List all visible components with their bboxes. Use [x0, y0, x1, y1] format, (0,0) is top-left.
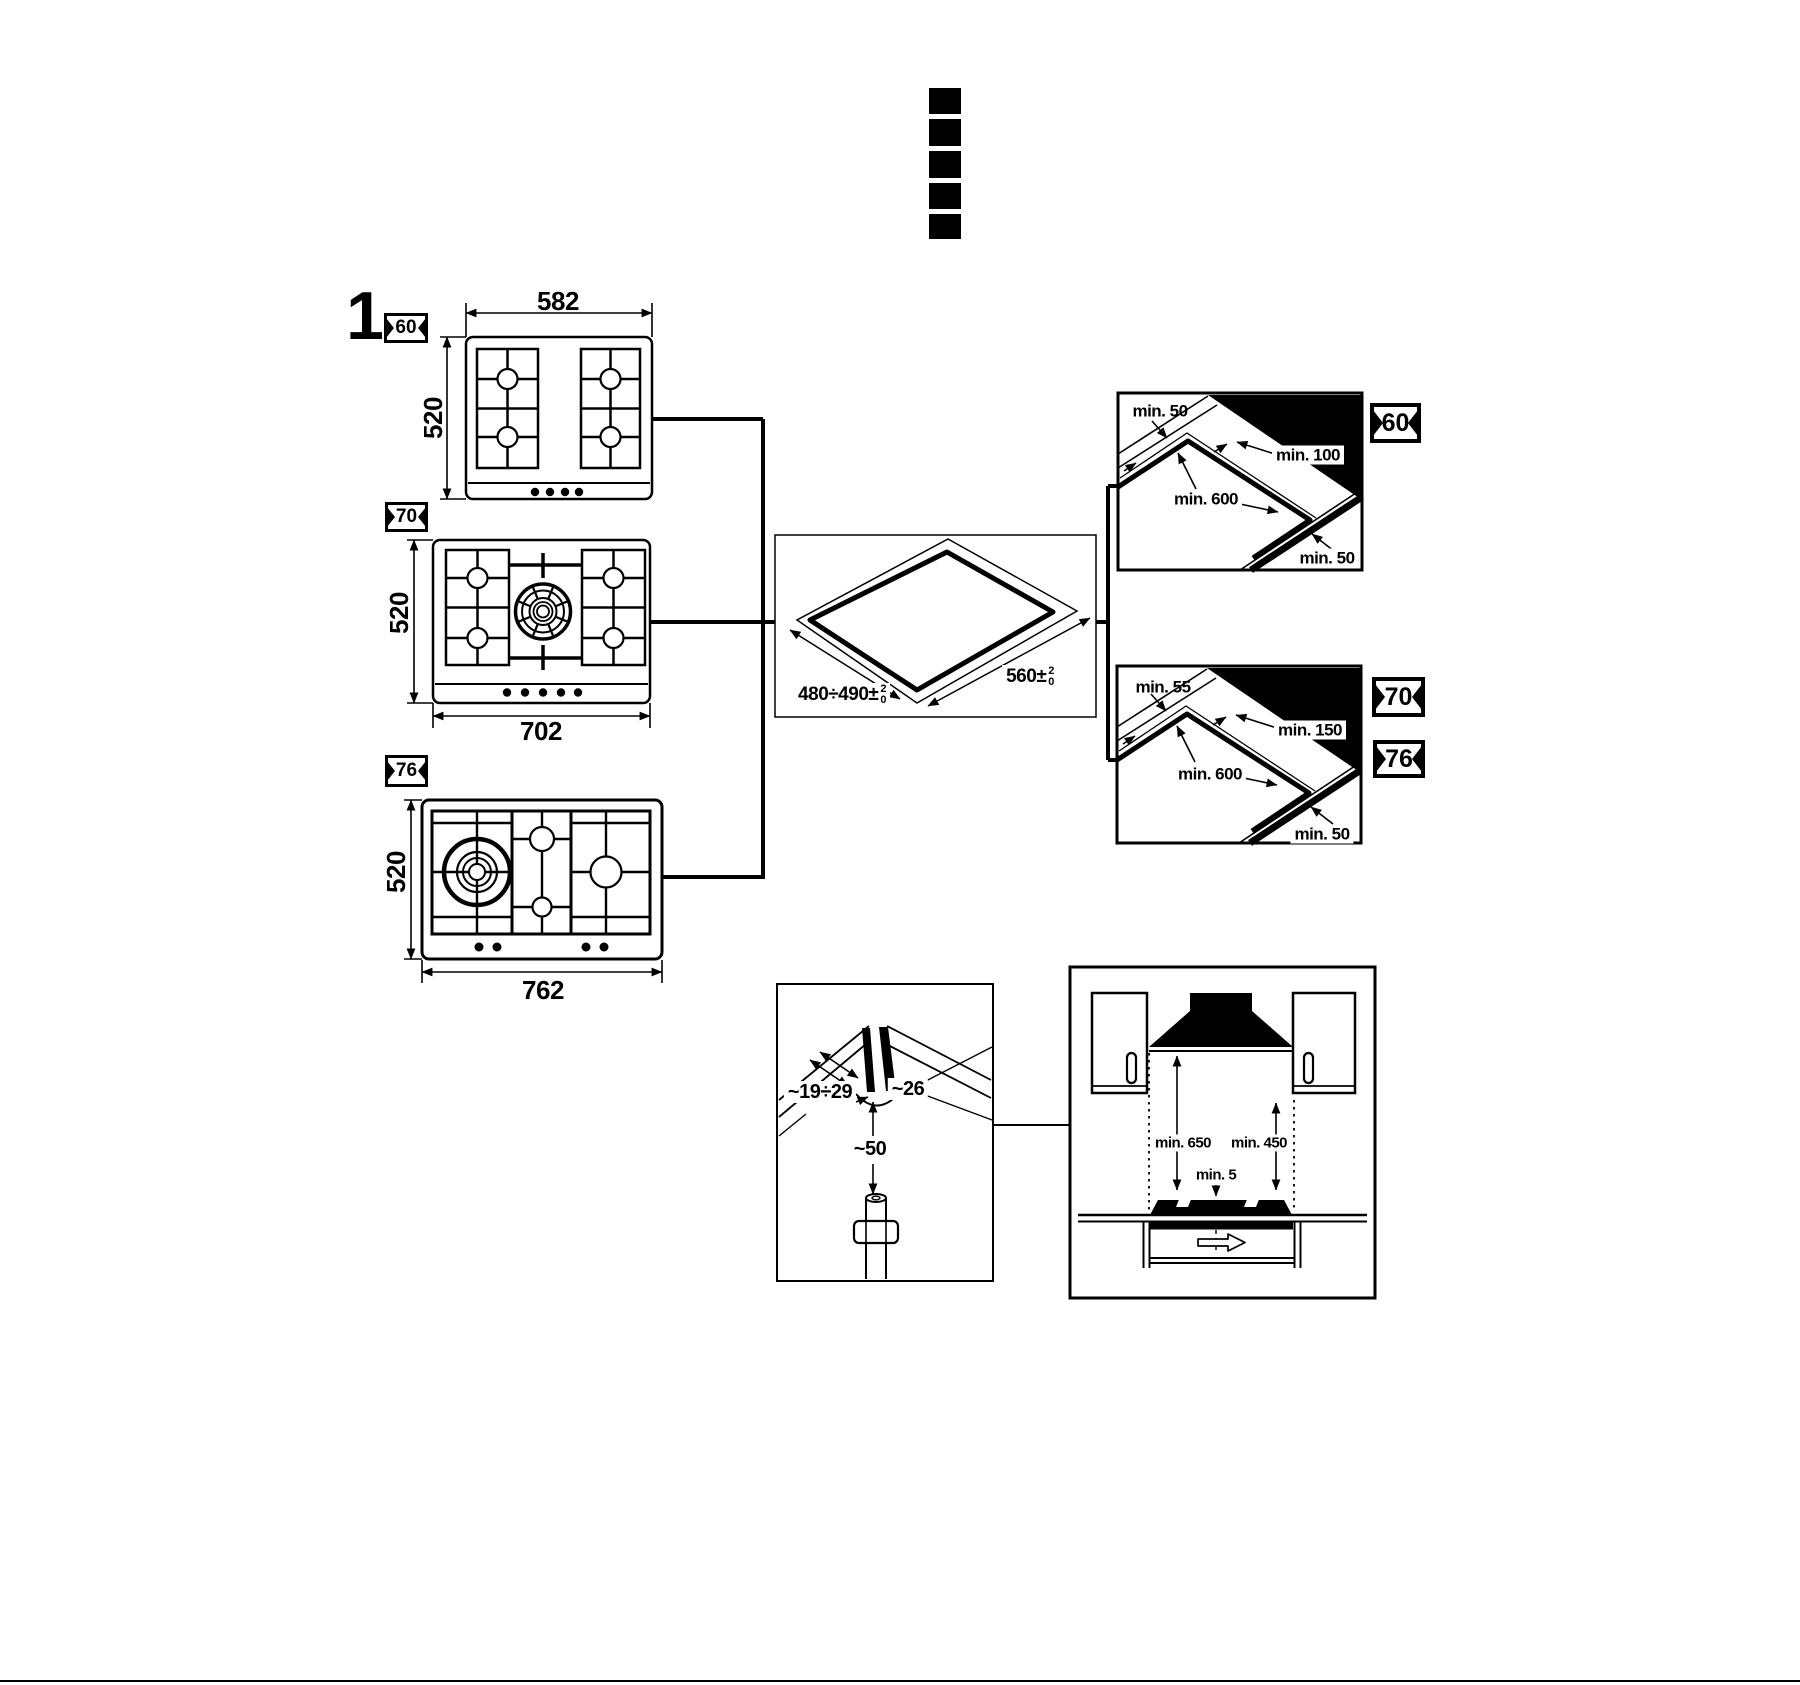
gas-connection-drawing	[777, 984, 993, 1281]
hob-70-knobs	[503, 688, 582, 696]
clearance-60-front-label: min. 50	[1295, 549, 1358, 568]
tolerance-stack: 20	[1048, 666, 1054, 688]
hob-60-width-label: 582	[537, 288, 579, 314]
clearance-60-rear-label: min. 100	[1272, 446, 1344, 465]
gas-pipe-fitting	[854, 1194, 898, 1279]
gas-pipe-clearance-label: ~50	[850, 1138, 890, 1160]
base-gap-label: min. 5	[1192, 1167, 1240, 1184]
manual-page: 1 60 70 76 60 70 76 582 520 702 520 762 …	[0, 0, 1800, 1685]
badge-notch-left	[387, 507, 395, 527]
badge-notch-right	[418, 318, 426, 338]
hood-clearance-label: min. 650	[1151, 1135, 1215, 1152]
page-bottom-rule	[0, 1680, 1800, 1682]
connector-lines	[650, 419, 1119, 1125]
hob-76-knobs	[475, 943, 609, 952]
gas-hole-width-label: ~26	[888, 1078, 928, 1100]
badge-notch-right	[418, 507, 426, 527]
badge-notch-right	[418, 761, 426, 781]
hob-70-depth-label: 520	[386, 592, 412, 634]
badge-notch-left	[387, 761, 395, 781]
badge-notch-left	[386, 318, 394, 338]
hob-76-depth-label: 520	[383, 851, 409, 893]
badge-76-right: 76	[1373, 740, 1425, 778]
badge-notch-right	[1412, 746, 1422, 772]
tolerance-stack: 20	[880, 684, 886, 706]
clearance-70-76-rear-label: min. 150	[1274, 721, 1346, 740]
cabinet-clearance-label: min. 450	[1227, 1135, 1291, 1152]
badge-70-left: 70	[385, 502, 428, 532]
badge-notch-right	[1412, 684, 1422, 710]
figure-number: 1	[346, 282, 382, 350]
clearance-60-side-label: min. 50	[1132, 403, 1187, 420]
clearance-70-76-side-label: min. 55	[1135, 679, 1190, 696]
hob-70-drawing	[433, 540, 650, 703]
badge-60-left: 60	[384, 313, 428, 343]
clearance-70-76-length-label: min. 600	[1174, 765, 1246, 784]
hob-60-dimensions	[440, 303, 652, 499]
hob-76-dimensions	[404, 800, 662, 983]
badge-notch-left	[1375, 684, 1385, 710]
badge-76-left: 76	[385, 755, 428, 787]
hob-76-drawing	[422, 800, 662, 959]
cutout-depth-label: 480÷490±20	[794, 683, 890, 707]
hob-70-width-label: 702	[520, 718, 562, 744]
hob-60-drawing	[466, 337, 652, 499]
line-art	[0, 0, 1800, 1685]
cutout-width-label: 560±20	[1002, 665, 1058, 689]
badge-70-right: 70	[1372, 677, 1425, 717]
gas-hole-depth-label: ~19÷29	[784, 1081, 856, 1103]
clearance-70-76-front-label: min. 50	[1290, 825, 1353, 844]
clearance-60-length-label: min. 600	[1170, 490, 1242, 509]
hob-70-wok-burner	[516, 584, 571, 639]
fold-marks	[929, 88, 961, 239]
badge-60-right: 60	[1370, 403, 1421, 443]
badge-notch-right	[1408, 410, 1418, 436]
hob-60-knobs	[531, 488, 583, 496]
hob-76-width-label: 762	[522, 977, 564, 1003]
hood-clearance-drawing	[1070, 967, 1375, 1298]
drawer-arrow-icon	[1198, 1234, 1245, 1251]
hob-60-depth-label: 520	[420, 397, 446, 439]
